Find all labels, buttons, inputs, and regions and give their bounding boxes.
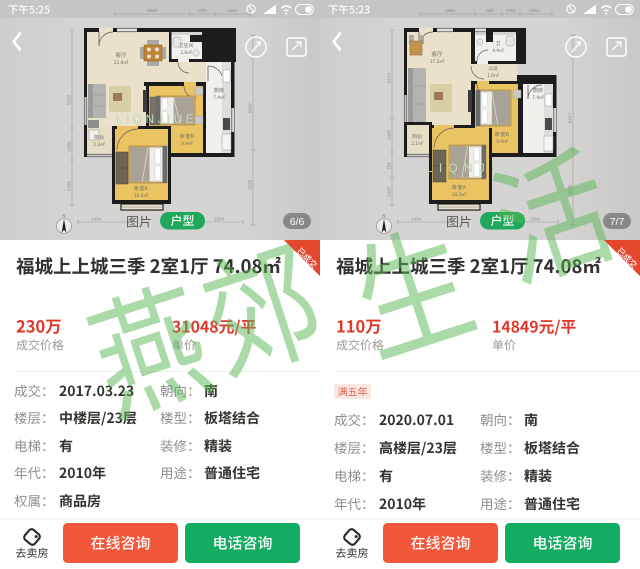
svg-text:5524: 5524 <box>387 72 392 83</box>
svg-text:5529: 5529 <box>67 94 72 105</box>
svg-text:1690: 1690 <box>67 141 72 152</box>
svg-text:756: 756 <box>387 162 392 170</box>
svg-text:1434: 1434 <box>411 217 422 222</box>
svg-text:6947: 6947 <box>568 112 573 123</box>
svg-text:1504: 1504 <box>227 8 238 13</box>
svg-text:1550: 1550 <box>445 8 456 13</box>
svg-text:2435: 2435 <box>67 180 72 191</box>
svg-text:1499: 1499 <box>387 129 392 140</box>
svg-text:6947: 6947 <box>248 102 253 113</box>
svg-text:LIQNJIUE: LIQNJIUE <box>426 161 530 175</box>
svg-text:4848: 4848 <box>147 8 158 13</box>
svg-text:N: N <box>383 213 386 218</box>
svg-text:1434: 1434 <box>91 217 102 222</box>
svg-text:2528: 2528 <box>248 179 253 190</box>
svg-text:LIQNJIUE: LIQNJIUE <box>116 112 197 126</box>
svg-text:1781: 1781 <box>197 8 208 13</box>
svg-text:996: 996 <box>486 8 494 13</box>
svg-text:2435: 2435 <box>387 186 392 197</box>
svg-text:1781: 1781 <box>506 8 517 13</box>
svg-text:N: N <box>63 213 66 218</box>
svg-text:1504: 1504 <box>214 217 225 222</box>
svg-text:1504: 1504 <box>530 217 541 222</box>
svg-text:6/6: 6/6 <box>290 216 305 228</box>
svg-text:7/7: 7/7 <box>610 216 625 228</box>
svg-text:1504: 1504 <box>529 8 540 13</box>
